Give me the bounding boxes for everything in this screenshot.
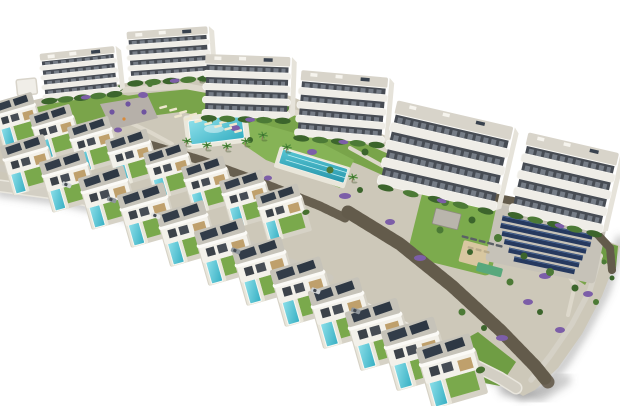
- palm-crown: [245, 140, 247, 142]
- palm-crown: [286, 146, 288, 148]
- residential-development-aerial-render: [0, 0, 620, 406]
- roof-pergola: [310, 73, 317, 77]
- palm-crown: [352, 176, 354, 178]
- apartment-block: [36, 45, 126, 105]
- roof-pergola: [159, 31, 166, 35]
- roof-pergola: [135, 33, 142, 37]
- palm-crown: [186, 140, 188, 142]
- roof-pergola: [239, 57, 246, 61]
- palm-crown: [206, 144, 208, 146]
- apartment-block: [124, 26, 218, 87]
- roof-solar-panel: [182, 29, 191, 33]
- apartment-block: [201, 54, 297, 124]
- roof-pergola: [214, 56, 221, 60]
- palm-crown: [226, 145, 228, 147]
- plaza-play-equipment: [122, 117, 125, 120]
- palm-crown: [262, 134, 264, 136]
- roof-pergola: [48, 54, 55, 58]
- roof-pergola: [335, 75, 342, 79]
- roof-pergola: [69, 51, 76, 55]
- apartment-block: [293, 70, 395, 149]
- roof-solar-panel: [264, 58, 273, 62]
- aerial-render-canvas: [0, 0, 620, 406]
